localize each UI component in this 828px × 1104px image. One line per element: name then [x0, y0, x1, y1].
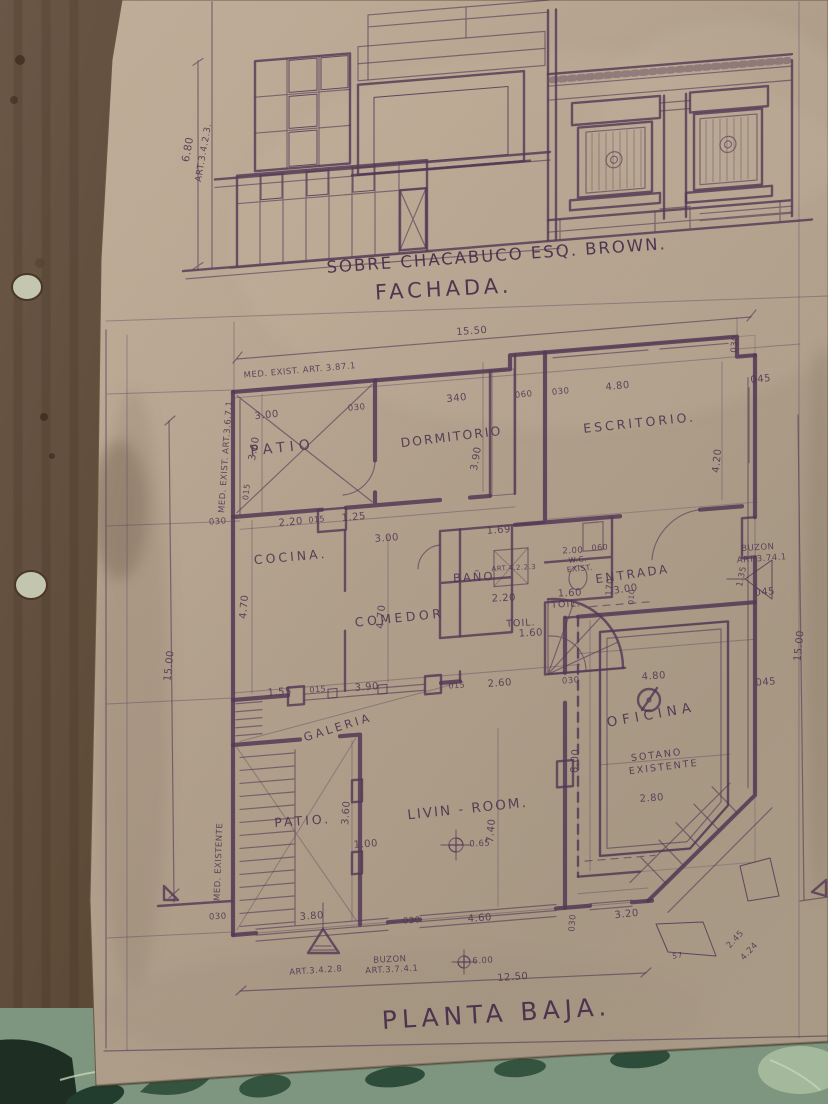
- dim-label: 0.65: [469, 838, 490, 849]
- dim-label: 2.80: [639, 792, 664, 805]
- dim-label: 1.60: [557, 587, 582, 599]
- dim-label: 3.00: [374, 532, 399, 545]
- paper-sheet: [0, 0, 828, 1104]
- dim-label: 010: [626, 589, 636, 605]
- blueprint-svg: 6.80ART.3.4.2.3. PATIODORMITORIOESCRITOR…: [0, 0, 828, 1104]
- dim-label: 060: [591, 543, 608, 553]
- punch-hole: [15, 571, 47, 599]
- dim-label: 060: [514, 389, 533, 401]
- dim-label: 015: [309, 684, 326, 694]
- dim-label: 030: [209, 516, 227, 527]
- room-label: BAÑO: [453, 568, 495, 585]
- punch-hole: [12, 274, 42, 300]
- dim-label: 3.80: [299, 910, 324, 923]
- dim-label: 2.60: [487, 677, 512, 690]
- room-label: TOIL.: [550, 598, 581, 611]
- dim-label: 2.00: [562, 545, 583, 556]
- dim-label: 1.25: [341, 511, 366, 524]
- dim-label: 015: [308, 514, 326, 524]
- dim-label: 6.00: [472, 955, 493, 966]
- dim-label: 030: [403, 915, 421, 926]
- dim-label: 015: [241, 483, 252, 501]
- dim-label: 3.60: [340, 800, 353, 825]
- dim-label: 045: [755, 676, 776, 688]
- dim-label: 1.60: [518, 627, 543, 639]
- dim-label: 1.69: [486, 524, 511, 537]
- dim-label: 57: [672, 950, 684, 961]
- dim-label: 030: [729, 335, 740, 353]
- dim-label: 015: [448, 680, 465, 690]
- dim-label: 045: [750, 373, 772, 386]
- blueprint-photo: 6.80ART.3.4.2.3. PATIODORMITORIOESCRITOR…: [0, 0, 828, 1104]
- dim-label: 030: [551, 386, 570, 398]
- dim-label: 3.90: [354, 681, 379, 694]
- dim-label: 2.20: [278, 516, 303, 529]
- dim-label: 030: [347, 402, 366, 414]
- paper-grain: [0, 0, 828, 1104]
- dim-label: 4.80: [641, 670, 666, 683]
- dim-label: 1.00: [353, 838, 378, 851]
- dim-label: 8.00: [569, 748, 581, 773]
- dim-label: 030: [562, 675, 580, 686]
- dim-label: 12.50: [497, 971, 529, 984]
- dim-label: 045: [754, 586, 775, 599]
- dim-label: 4.70: [238, 594, 251, 619]
- dim-label: 340: [446, 392, 468, 405]
- dim-label: 15.50: [456, 325, 488, 338]
- dim-label: 4.70: [375, 604, 388, 629]
- dim-label: 030: [209, 912, 227, 923]
- dim-label: 4.60: [467, 912, 492, 925]
- dim-label: 2.20: [491, 592, 516, 604]
- dim-label: 1.55: [267, 686, 292, 699]
- dim-label: 030: [567, 914, 578, 932]
